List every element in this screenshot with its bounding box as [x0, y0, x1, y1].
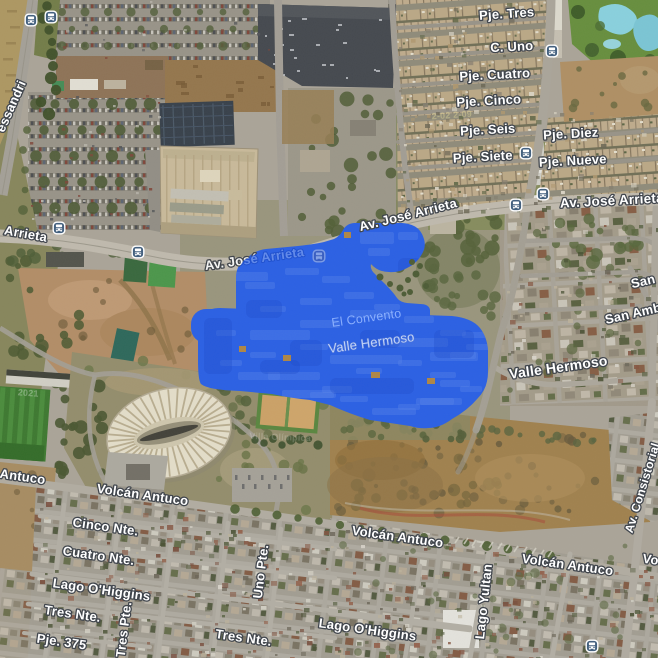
- svg-text:Pje. Seis: Pje. Seis: [460, 121, 516, 139]
- svg-text:2021: 2021: [17, 387, 38, 398]
- svg-text:C. Uno: C. Uno: [490, 38, 534, 55]
- svg-text:Pje. Siete: Pje. Siete: [453, 147, 514, 165]
- svg-text:Vol: Vol: [642, 551, 658, 569]
- svg-text:Pje. Diez: Pje. Diez: [543, 125, 599, 143]
